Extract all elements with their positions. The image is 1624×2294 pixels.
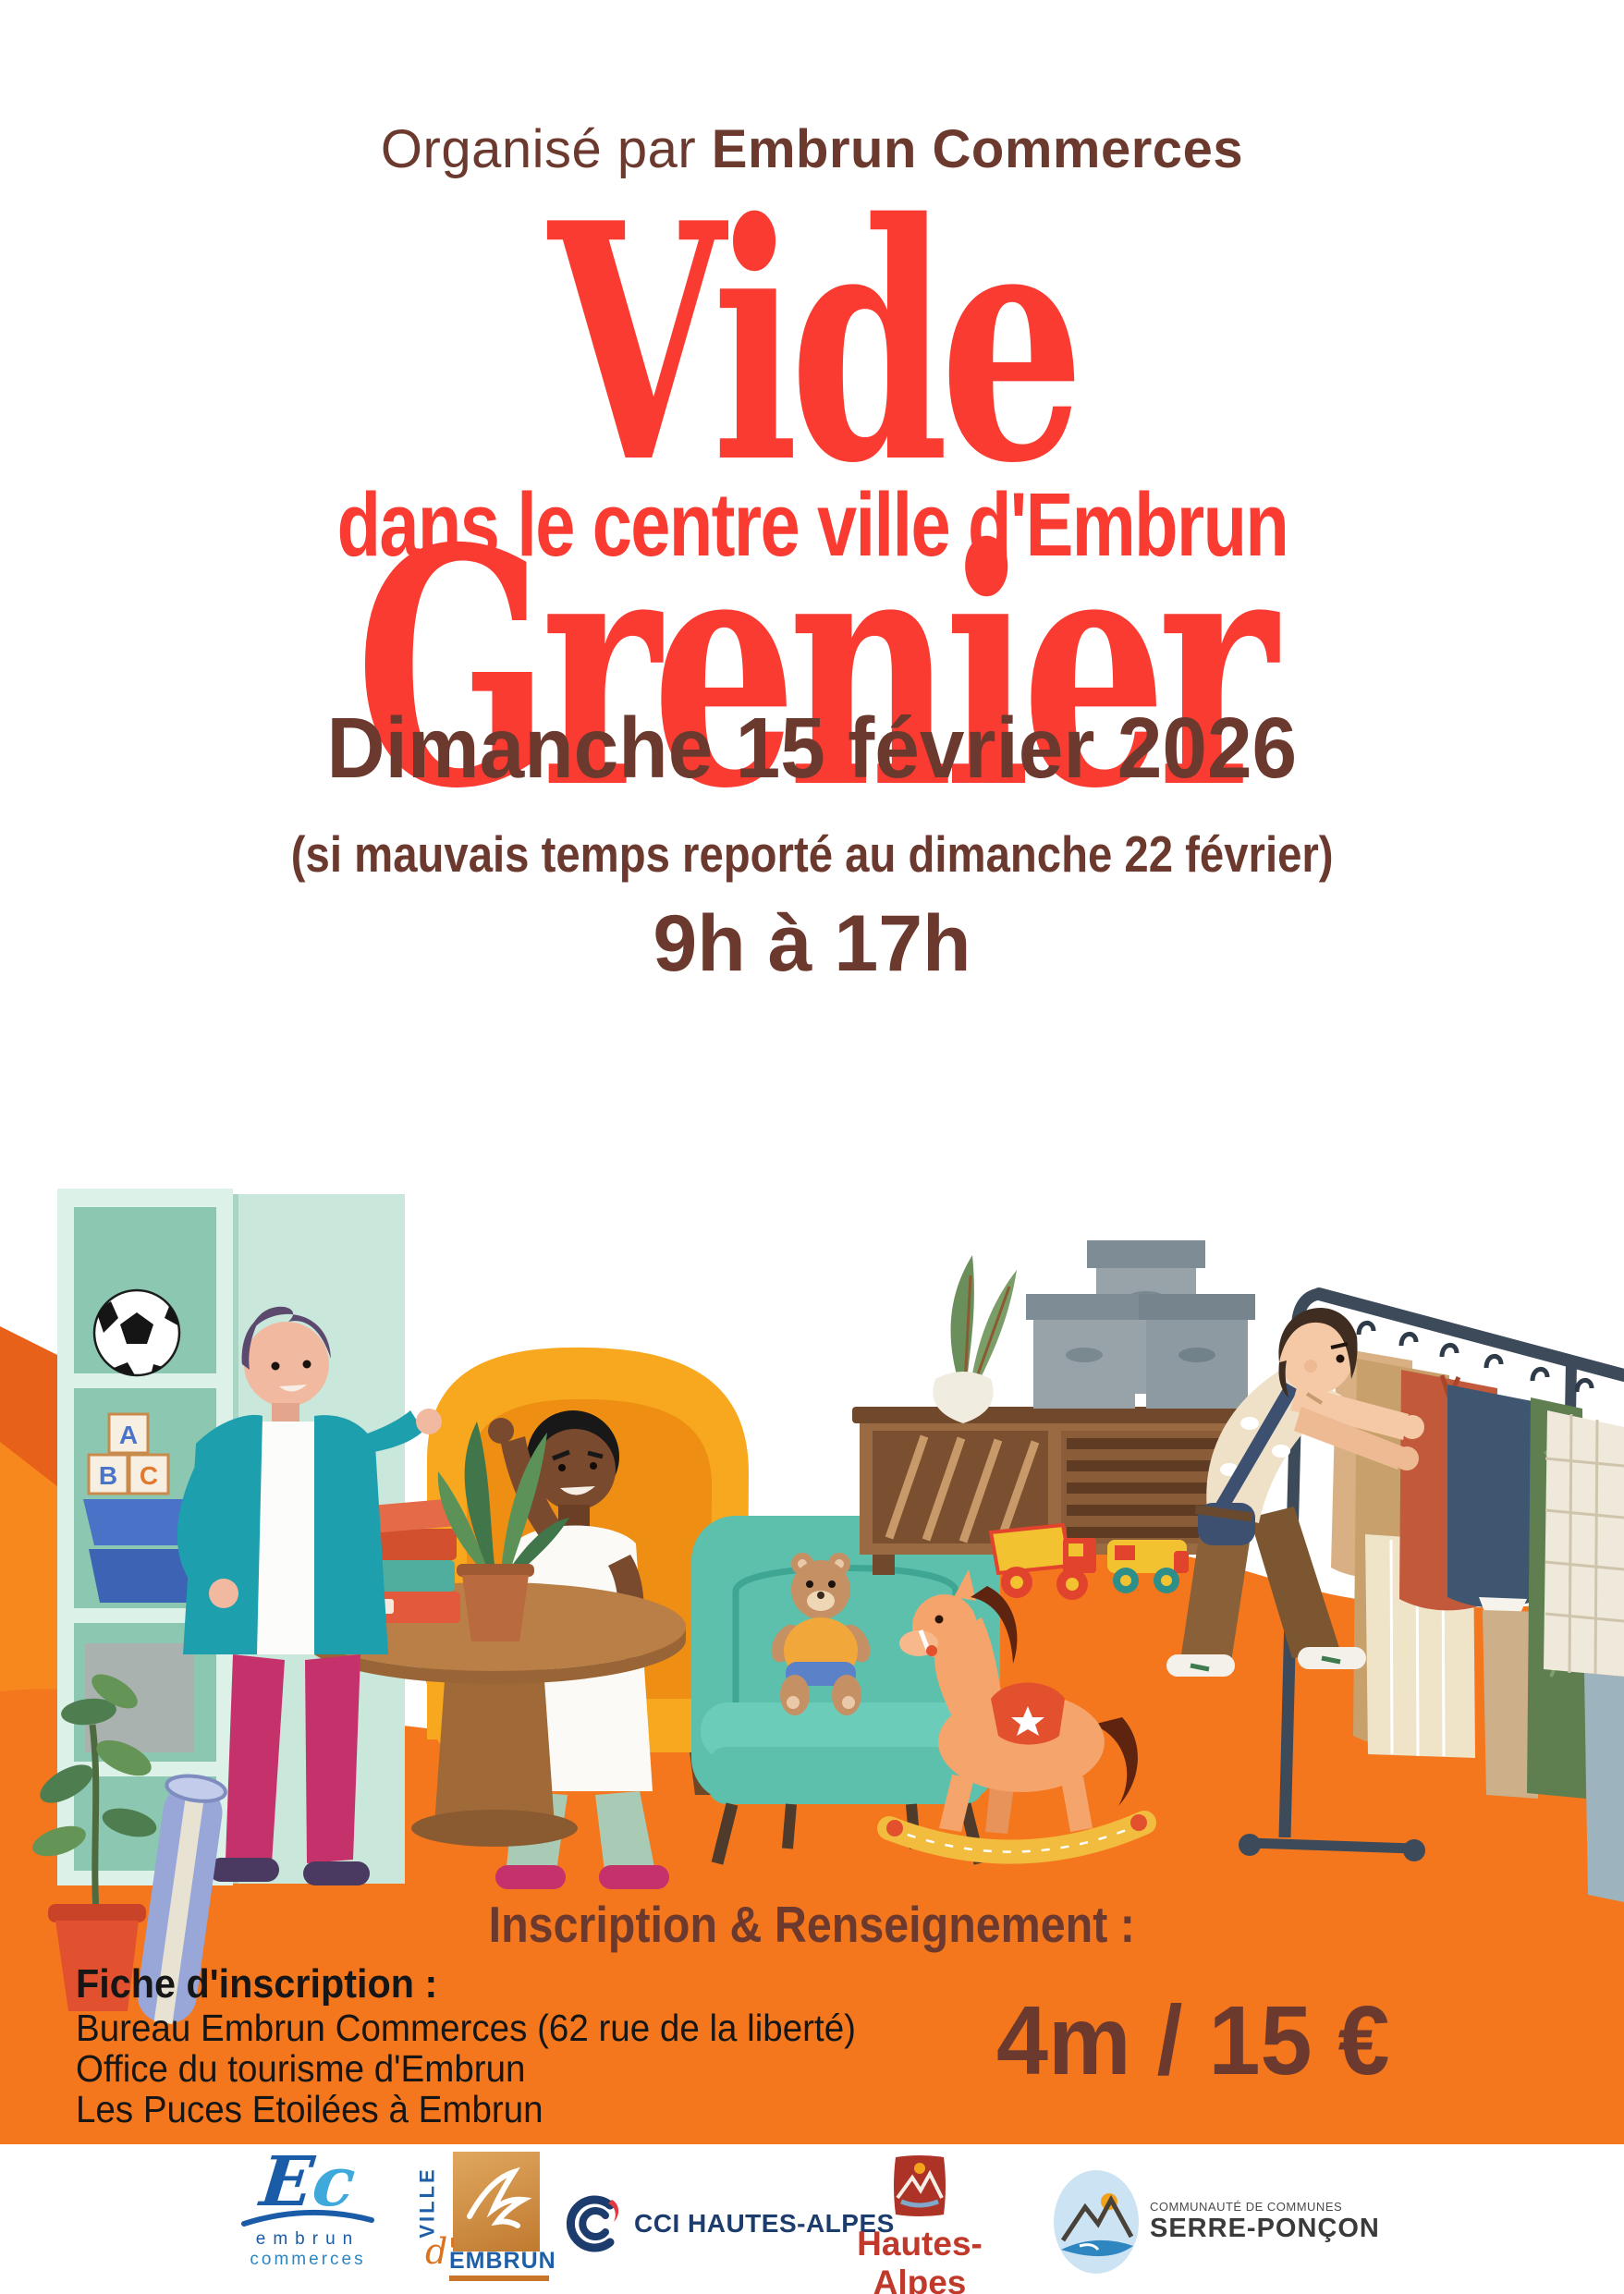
serre-poncon-icon [1052,2168,1141,2276]
logo-ville-embrun: VILLE d' EMBRUN [418,2152,566,2290]
logo-serre-poncon: COMMUNAUTÉ DE COMMUNES SERRE-PONÇON [1052,2168,1380,2276]
event-date: Dimanche 15 février 2026 [0,699,1624,798]
price-label: 4m / 15 € [996,1985,1389,2097]
ec-line2: commerces [220,2250,396,2270]
block-letter-b: B [99,1461,117,1490]
logo-hautes-alpes: Hautes-Alpes le département [818,2154,1021,2294]
subtitle: dans le centre ville d'Embrun [0,473,1624,577]
sweater-navy [1447,1385,1542,1608]
weather-note: (si mauvais temps reporté au dimanche 22… [0,824,1624,884]
partner-logos-bar: Ec embrun commerces VILLE d' EMBRUN CCI … [0,2144,1624,2294]
fabric-grey-blue [1584,1673,1624,1902]
vase-with-leaves [933,1255,1017,1423]
registration-line: Bureau Embrun Commerces (62 rue de la li… [76,2007,856,2048]
serre-poncon-line1: COMMUNAUTÉ DE COMMUNES [1150,2200,1380,2214]
ville-vertical-text: VILLE [416,2166,440,2238]
logo-embrun-commerces: Ec embrun commerces [220,2150,396,2270]
serre-poncon-text: COMMUNAUTÉ DE COMMUNES SERRE-PONÇON [1150,2200,1380,2244]
poster-root: Organisé par Embrun Commerces Vide Greni… [0,0,1624,2294]
shirt-plaid [1544,1410,1624,1677]
ville-name: EMBRUN [449,2248,556,2275]
registration-heading: Fiche d'inscription : [76,1961,856,2007]
storage-boxes [1026,1240,1255,1409]
event-hours: 9h à 17h [0,898,1624,990]
block-letter-c: C [140,1461,158,1490]
serre-poncon-line2: SERRE-PONÇON [1150,2214,1380,2244]
bird-sketch-icon [453,2152,540,2251]
ville-underline [449,2276,549,2281]
info-heading: Inscription & Renseignement : [0,1895,1624,1954]
ec-line1: embrun [220,2229,396,2250]
registration-block: Fiche d'inscription : Bureau Embrun Comm… [76,1961,906,2129]
hautes-alpes-icon [890,2154,949,2218]
registration-line: Office du tourisme d'Embrun [76,2048,856,2089]
registration-line: Les Puces Etoilées à Embrun [76,2089,856,2129]
cci-icon [564,2194,623,2253]
hautes-alpes-name: Hautes-Alpes [818,2225,1021,2294]
embrun-commerces-monogram: Ec [216,2150,398,2215]
ville-embrun-emblem [453,2152,540,2251]
block-letter-a: A [119,1421,138,1449]
